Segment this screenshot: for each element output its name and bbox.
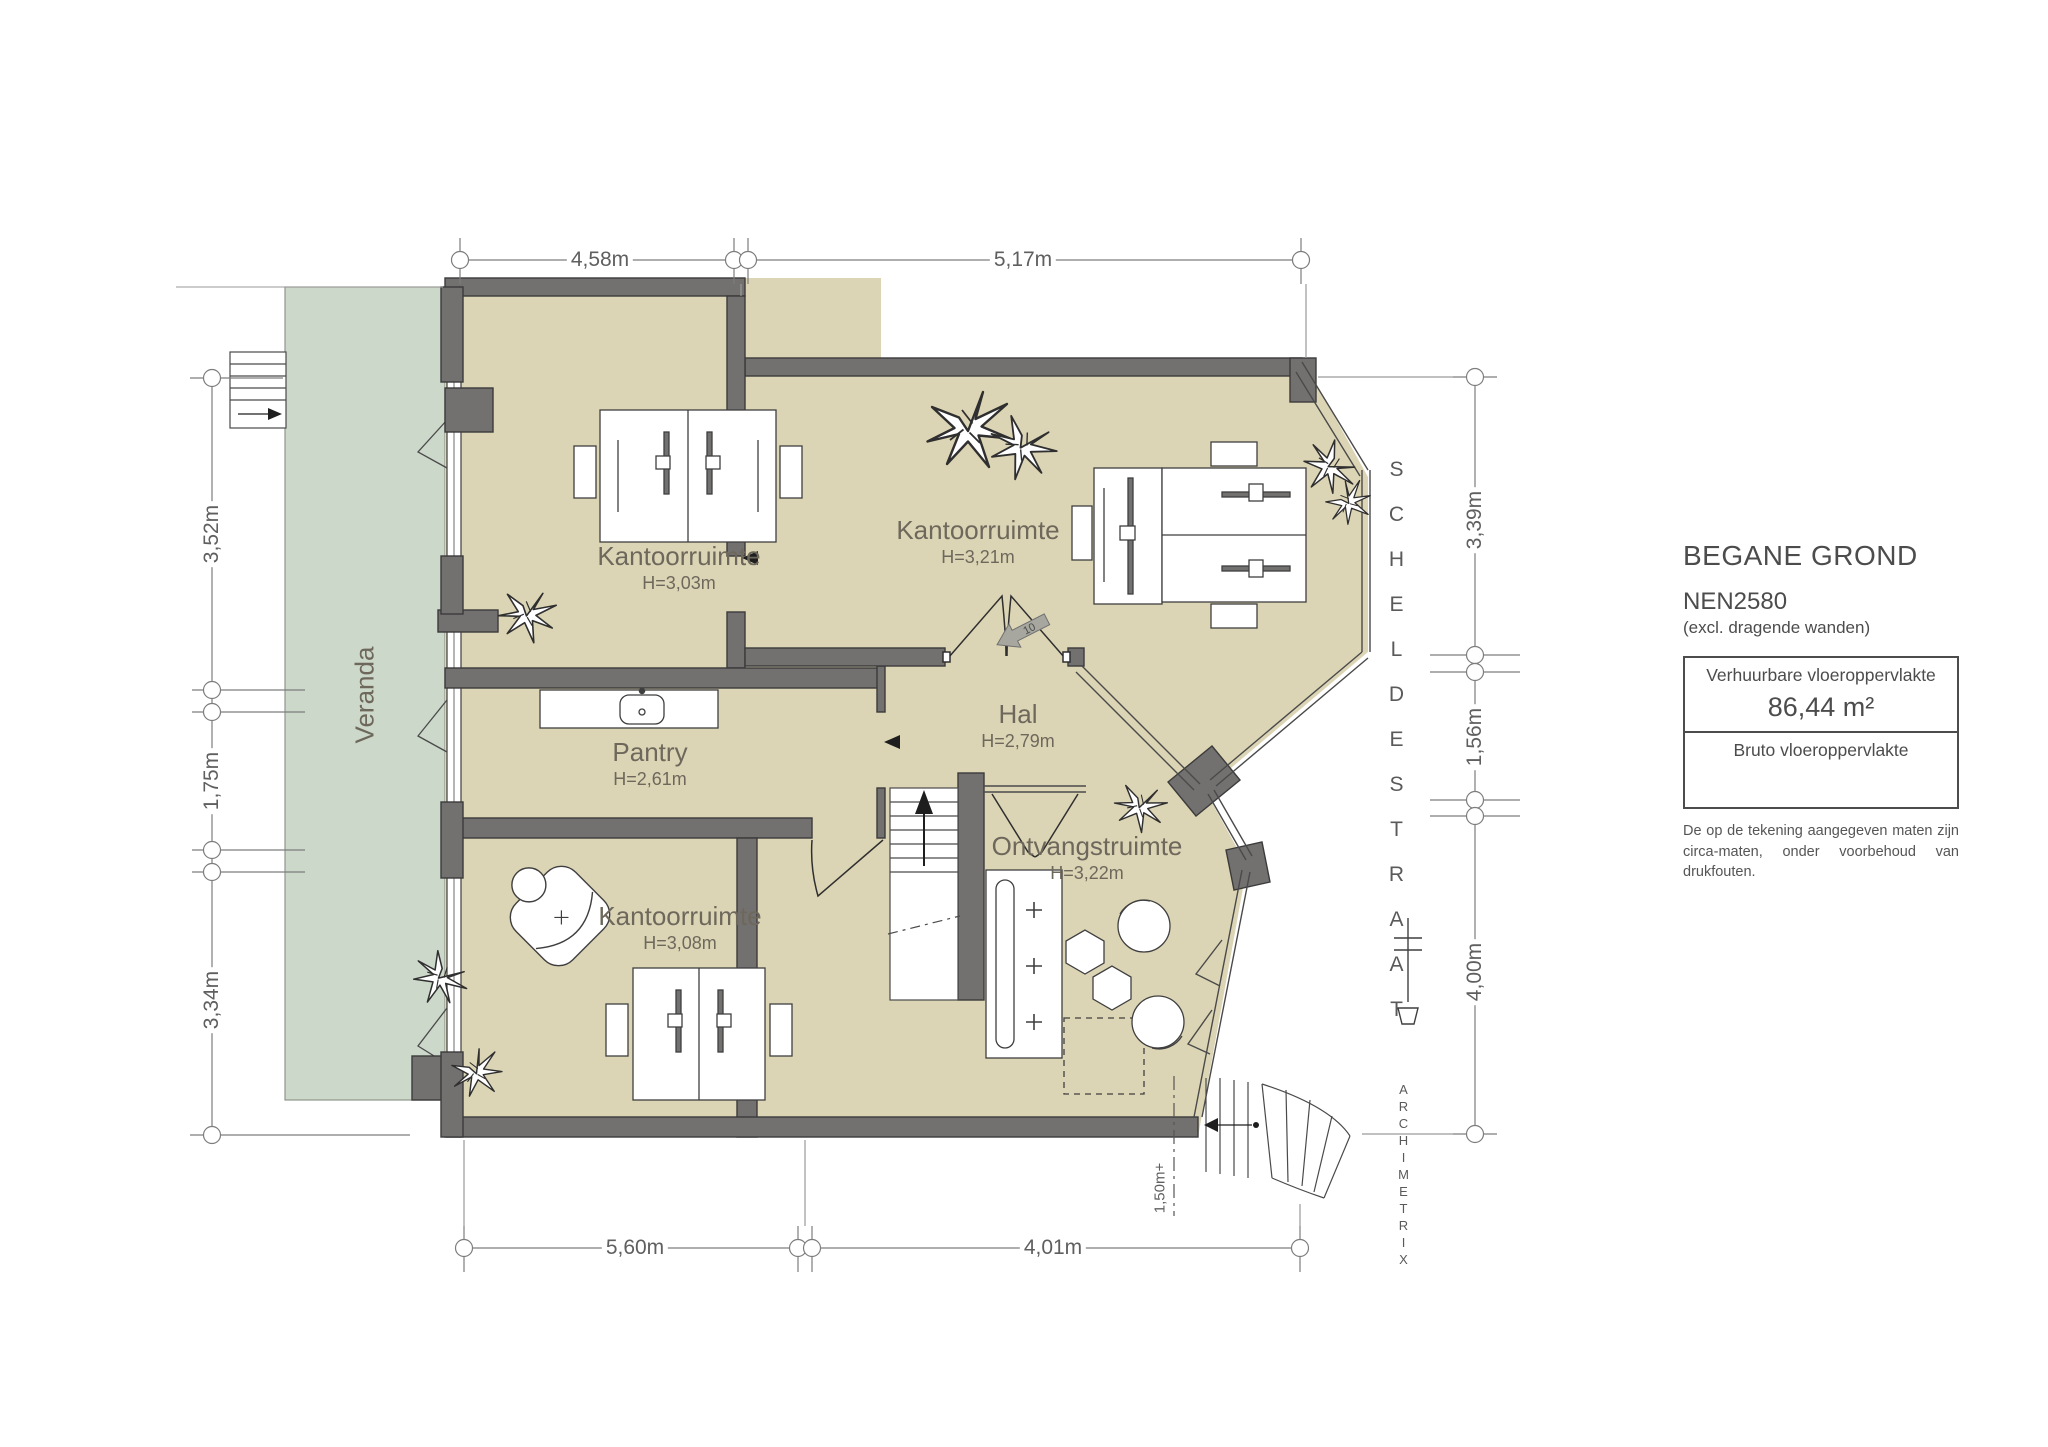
- dim-bottom-2: 4,01m: [1020, 1236, 1086, 1260]
- room-label-pantry: Pantry H=2,61m: [612, 737, 687, 791]
- firm-name: ARCHIMETRIX: [1396, 1082, 1411, 1242]
- rentable-area-label: Verhuurbare vloeroppervlakte: [1691, 665, 1951, 686]
- staircase: [888, 788, 960, 1000]
- disclaimer: De op de tekening aangegeven maten zijn …: [1683, 821, 1959, 883]
- norm-note: (excl. dragende wanden): [1683, 618, 1959, 638]
- wall-hal-divider-lower: [877, 788, 885, 838]
- wall-hal-divider-upper: [877, 666, 885, 712]
- floorplan-page: 10: [0, 0, 2048, 1447]
- room-label-kantoorruimte-2: Kantoorruimte H=3,21m: [896, 515, 1059, 569]
- room-label-veranda: Veranda: [350, 647, 381, 744]
- chair: [1211, 442, 1257, 466]
- swivel-chair: [1132, 996, 1184, 1048]
- wall-pantry-top: [445, 668, 881, 688]
- norm-label: NEN2580: [1683, 588, 1959, 616]
- dim-left-3: 3,34m: [200, 967, 224, 1033]
- pantry-counter: [540, 688, 718, 728]
- room-label-ontvangstruimte: Ontvangstruimte H=3,22m: [992, 831, 1183, 885]
- wall-bottom: [445, 1117, 1198, 1137]
- dim-left-2: 1,75m: [200, 748, 224, 814]
- area-table: Verhuurbare vloeroppervlakte 86,44 m² Br…: [1683, 656, 1959, 809]
- page-title: BEGANE GROND: [1683, 540, 1959, 572]
- dim-right-2: 1,56m: [1463, 704, 1487, 770]
- desk-cluster-office2: [1072, 442, 1306, 628]
- chair: [574, 446, 596, 498]
- room-label-kantoorruimte-1: Kantoorruimte H=3,03m: [597, 541, 760, 595]
- gross-area-row: Bruto vloeroppervlakte: [1685, 733, 1957, 807]
- wall-office2-bottom: [745, 648, 945, 666]
- chair: [1211, 604, 1257, 628]
- swivel-chair: [1118, 900, 1170, 952]
- dim-right-1: 3,39m: [1463, 487, 1487, 553]
- dim-top-2: 5,17m: [990, 248, 1056, 272]
- level-marker: 1,50m+: [1152, 1163, 1169, 1213]
- desk-cluster-office1: [574, 410, 802, 542]
- desk-cluster-office3: [606, 968, 792, 1100]
- room-label-hal: Hal H=2,79m: [981, 699, 1055, 753]
- chimney-top-office: [445, 388, 493, 432]
- chair: [606, 1004, 628, 1056]
- street-name: SCHELDESTRAAT: [1384, 458, 1408, 1058]
- dim-top-1: 4,58m: [567, 248, 633, 272]
- wall-stair-side: [958, 773, 984, 1000]
- wall-pantry-bottom: [445, 818, 812, 838]
- dim-bottom-1: 5,60m: [602, 1236, 668, 1260]
- chair: [770, 1004, 792, 1056]
- title-block: BEGANE GROND NEN2580 (excl. dragende wan…: [1683, 540, 1959, 883]
- room-label-kantoorruimte-3: Kantoorruimte H=3,08m: [598, 901, 761, 955]
- wall-top-right: [745, 358, 1302, 376]
- dim-right-3: 4,00m: [1463, 939, 1487, 1005]
- dim-left-1: 3,52m: [200, 501, 224, 567]
- wall-office-divider-lower: [727, 612, 745, 668]
- rentable-area-value: 86,44 m²: [1691, 692, 1951, 723]
- wall-top-left: [445, 278, 745, 296]
- chair: [1072, 506, 1092, 560]
- gross-area-label: Bruto vloeroppervlakte: [1691, 740, 1951, 761]
- chair: [780, 446, 802, 498]
- rentable-area-row: Verhuurbare vloeroppervlakte 86,44 m²: [1685, 658, 1957, 733]
